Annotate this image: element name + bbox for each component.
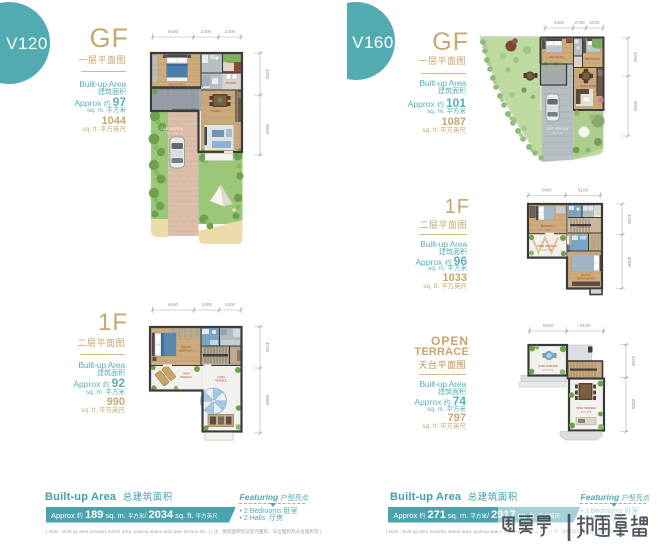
svg-text:6000: 6000 [265, 395, 270, 406]
svg-text:5400: 5400 [168, 302, 179, 307]
svg-text:2400: 2400 [589, 20, 600, 25]
svg-text:KITCHEN: KITCHEN [226, 82, 237, 85]
svg-text:OPEN TERRACE: OPEN TERRACE [576, 407, 596, 410]
svg-text:BEDROOM 2: BEDROOM 2 [541, 225, 556, 228]
svg-text:6000: 6000 [633, 101, 638, 112]
svg-text:BED ROOM 2: BED ROOM 2 [585, 58, 601, 61]
svg-text:DINING ROOM: DINING ROOM [580, 85, 596, 88]
svg-text:BED ROOM 1: BED ROOM 1 [549, 56, 565, 59]
svg-text:OPEN TERRACE: OPEN TERRACE [537, 245, 557, 248]
svg-text:DINING: DINING [212, 110, 221, 113]
svg-text:CAR PORCH: CAR PORCH [161, 127, 184, 131]
svg-text:2400: 2400 [225, 29, 236, 34]
svg-text:CAR PORCH: CAR PORCH [546, 127, 569, 131]
svg-text:2400: 2400 [202, 302, 213, 307]
svg-text:6000: 6000 [265, 124, 270, 135]
svg-text:5400: 5400 [541, 188, 552, 193]
svg-text:16'0 x 19'8: 16'0 x 19'8 [552, 133, 563, 135]
svg-text:4200: 4200 [631, 356, 636, 367]
svg-text:4200: 4200 [265, 342, 270, 353]
svg-text:STAIRCASE: STAIRCASE [578, 226, 591, 229]
svg-text:4200: 4200 [627, 214, 632, 225]
svg-text:16'0 x 19'8: 16'0 x 19'8 [167, 133, 178, 135]
svg-text:TERRACE: TERRACE [215, 380, 227, 383]
svg-text:6000: 6000 [627, 257, 632, 268]
svg-text:5100: 5100 [580, 323, 591, 328]
svg-text:12'2 x 16'0: 12'2 x 16'0 [543, 370, 554, 372]
svg-text:6000: 6000 [631, 399, 636, 410]
svg-text:4200: 4200 [633, 52, 638, 63]
svg-text:5400: 5400 [554, 20, 565, 25]
svg-text:5100: 5100 [578, 188, 589, 193]
svg-text:2400: 2400 [201, 29, 212, 34]
svg-text:WIB: WIB [546, 230, 551, 232]
svg-text:5400: 5400 [543, 323, 554, 328]
svg-text:BED ROOM 1: BED ROOM 1 [169, 84, 185, 87]
svg-text:2700: 2700 [574, 20, 585, 25]
svg-text:BEDROOM: BEDROOM [180, 350, 193, 353]
svg-text:2400: 2400 [225, 302, 236, 307]
svg-text:OPEN TERRACE: OPEN TERRACE [538, 365, 558, 368]
svg-text:9'10 x 16'0: 9'10 x 16'0 [542, 250, 553, 252]
svg-text:4200: 4200 [265, 69, 270, 80]
svg-text:11'2 x 19'8: 11'2 x 19'8 [581, 412, 592, 414]
svg-text:BEDROOM WIB: BEDROOM WIB [577, 278, 595, 281]
svg-text:TERRACE: TERRACE [180, 376, 192, 379]
svg-text:5400: 5400 [168, 29, 179, 34]
